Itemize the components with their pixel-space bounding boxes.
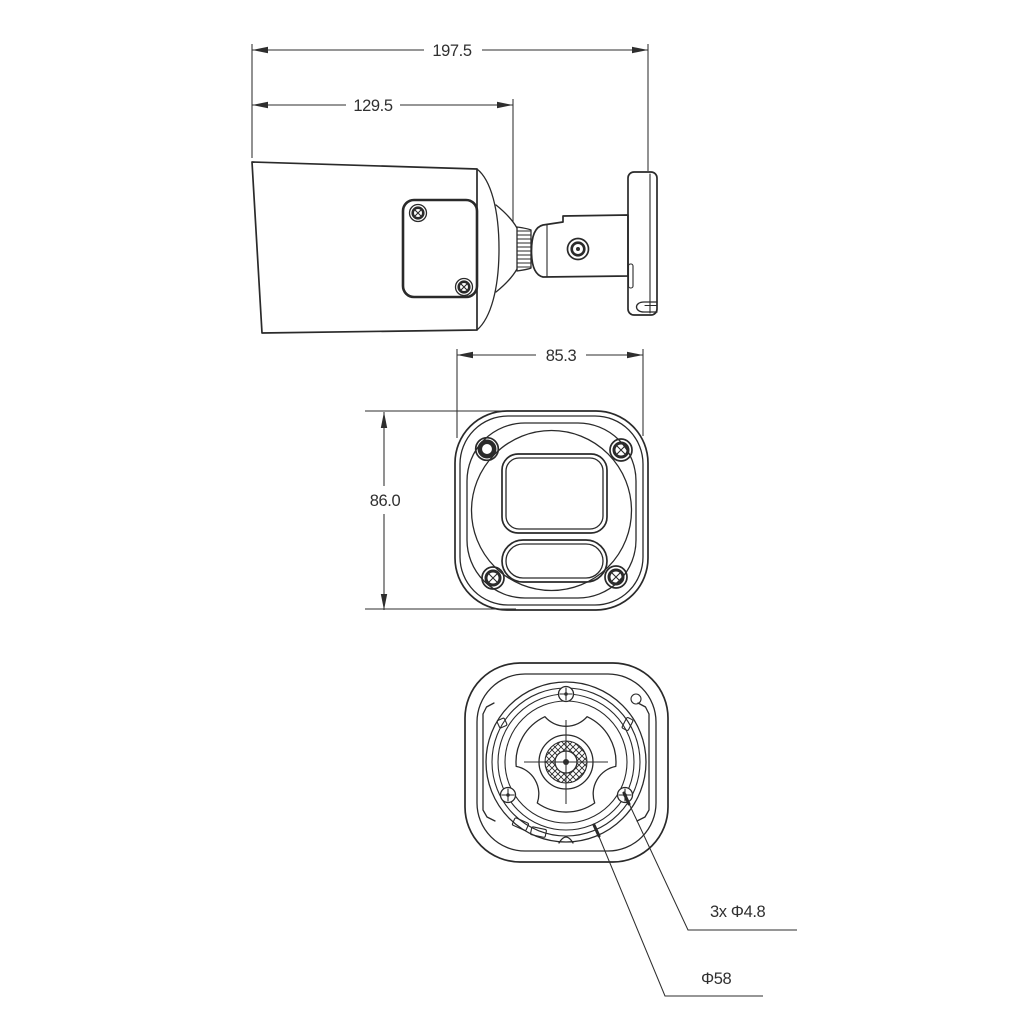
lens-window: [502, 454, 607, 533]
knurl-ridges: [517, 231, 531, 267]
dim-front-width: 85.3: [457, 347, 643, 438]
arrowhead: [252, 47, 268, 53]
side-bracket-right: [637, 703, 649, 821]
body-rear-cap: [477, 169, 499, 330]
side-bracket-left: [483, 703, 495, 821]
dim-front-width-text: 85.3: [546, 347, 577, 365]
arrowhead: [381, 594, 387, 610]
side-view: 197.5 129.5: [252, 42, 657, 333]
mount-hole-screw: [559, 687, 574, 702]
arrowhead: [381, 412, 387, 428]
rear-view: 3x Φ4.8 Φ58: [465, 663, 797, 996]
arrowhead: [632, 47, 648, 53]
callout-screw-holes-text: 3x Φ4.8: [710, 903, 766, 921]
mount-base-plate: [628, 172, 657, 315]
housing-screw: [482, 567, 504, 589]
dim-overall-length: 197.5: [252, 42, 648, 171]
arm-screw: [568, 239, 589, 260]
panel-screw: [456, 279, 473, 296]
arrowhead: [627, 352, 643, 358]
mount-hole-screw: [501, 788, 516, 803]
dim-front-height-text: 86.0: [370, 492, 401, 510]
arrowhead: [252, 102, 268, 108]
cable-clip: [637, 302, 658, 312]
dim-front-height: 86.0: [365, 411, 516, 610]
arrowhead: [497, 102, 513, 108]
dim-body-length-text: 129.5: [353, 97, 393, 115]
callout-screw-holes: 3x Φ4.8: [624, 793, 797, 930]
center-conduit-hole: [524, 720, 608, 804]
housing-hole: [476, 438, 499, 461]
callout-mount-diameter-text: Φ58: [701, 970, 732, 988]
alignment-tab: [631, 694, 641, 704]
dim-overall-length-text: 197.5: [432, 42, 472, 60]
housing-screw: [605, 566, 627, 588]
arrowhead: [457, 352, 473, 358]
front-view: 85.3 86.0: [365, 347, 648, 610]
camera-body: [252, 162, 499, 333]
mount-arm: [532, 215, 629, 277]
center-dot: [563, 759, 569, 765]
housing-screw: [610, 439, 632, 461]
ir-led-window: [502, 540, 607, 582]
technical-drawing-canvas: 197.5 129.5: [0, 0, 1024, 1024]
plate-slot: [629, 264, 634, 288]
panel-screw: [410, 205, 427, 222]
